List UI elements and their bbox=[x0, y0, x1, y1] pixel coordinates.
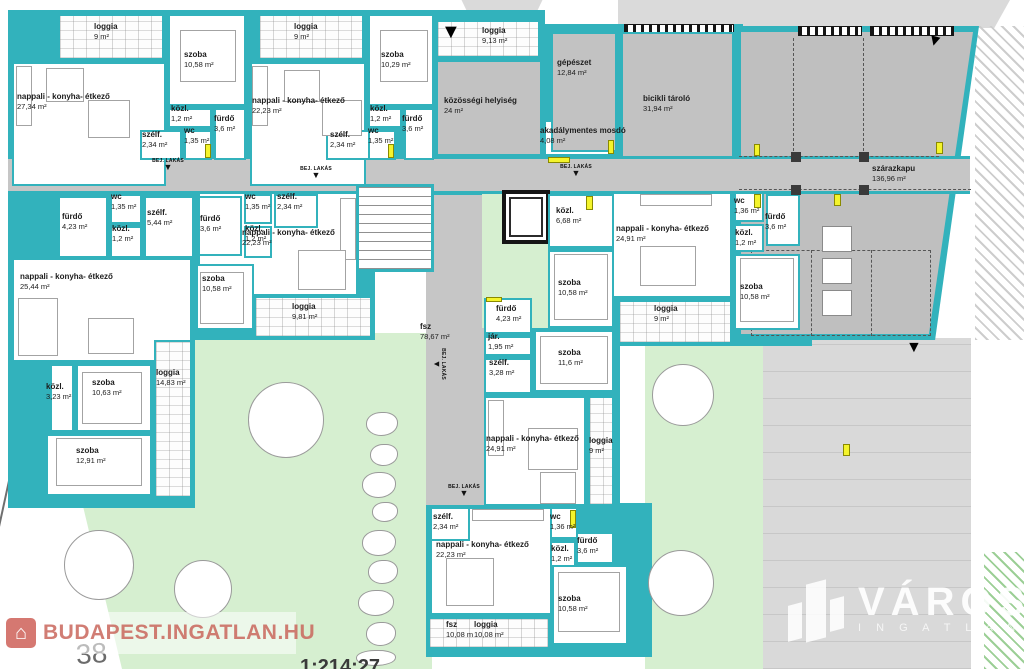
tree-1 bbox=[248, 382, 324, 458]
radiator-marker-11 bbox=[834, 194, 841, 206]
szelf-apt3-room bbox=[144, 196, 194, 258]
furniture-24 bbox=[472, 509, 544, 521]
radiator-marker-3 bbox=[608, 140, 614, 154]
stall-2 bbox=[822, 258, 852, 284]
radiator-marker-8 bbox=[486, 297, 502, 302]
dash-line-3 bbox=[739, 156, 939, 157]
ingatlan-watermark-text: BUDAPEST.INGATLAN.HU bbox=[43, 621, 315, 645]
tree-4 bbox=[652, 364, 714, 426]
varos-logo-icon bbox=[788, 582, 848, 642]
stall-3 bbox=[822, 290, 852, 316]
dash-line-6 bbox=[871, 250, 872, 336]
furniture-25 bbox=[446, 558, 494, 606]
loggia-apt3-room bbox=[154, 340, 192, 498]
varos-watermark-name: VÁROS bbox=[858, 582, 1024, 622]
radiator-marker-4 bbox=[754, 144, 760, 156]
varos-watermark-sub: I N G A T L A N bbox=[858, 622, 1024, 634]
furniture-16 bbox=[554, 254, 608, 320]
furniture-10 bbox=[88, 318, 134, 354]
radiator-marker-12 bbox=[843, 444, 850, 456]
floorplan-canvas: loggia9 m²nappali - konyha- étkező27,34 … bbox=[0, 0, 1024, 669]
radiator-marker-1 bbox=[205, 144, 211, 158]
hatch-right-band bbox=[975, 26, 1024, 340]
tree-3 bbox=[174, 560, 232, 618]
entrance-marker-3: BEJ. LAKÁS▼ bbox=[554, 164, 598, 180]
radiator-marker-10 bbox=[936, 142, 943, 154]
dash-line-2 bbox=[863, 38, 864, 156]
radiator-marker-5 bbox=[548, 157, 570, 163]
entrance-marker-2: BEJ. LAKÁS▼ bbox=[294, 166, 338, 182]
dash-line-4 bbox=[739, 189, 971, 190]
furniture-9 bbox=[18, 298, 58, 356]
tree-2 bbox=[64, 530, 134, 600]
furniture-22 bbox=[640, 246, 696, 286]
radiator-marker-6 bbox=[586, 196, 593, 210]
stall-1 bbox=[822, 226, 852, 252]
entrance-arrow-icon: ▼ bbox=[294, 172, 338, 178]
entrance-marker-1: BEJ. LAKÁS▼ bbox=[146, 158, 190, 174]
tree-5 bbox=[648, 550, 714, 616]
stairwell bbox=[356, 184, 434, 272]
furniture-3 bbox=[88, 100, 130, 138]
pillar-3 bbox=[791, 185, 801, 195]
loggia-apt2-room bbox=[258, 14, 364, 60]
elevator bbox=[502, 190, 550, 244]
furniture-15 bbox=[298, 250, 346, 290]
dash-line-1 bbox=[793, 38, 794, 156]
entrance-arrow-icon: ▼ bbox=[442, 490, 486, 496]
radiator-marker-2 bbox=[388, 144, 394, 158]
varos-watermark: VÁROS I N G A T L A N bbox=[788, 582, 1024, 642]
direction-arrow-1: ▼ bbox=[441, 22, 465, 46]
scale-text-clipped: 1:214:27 bbox=[300, 656, 380, 669]
entrance-marker-4: BEJ. LAKÁS▼ bbox=[442, 484, 486, 500]
loggia-apt1-room bbox=[58, 14, 164, 60]
entrance-marker-5: BEJ. LAKÁS▼ bbox=[430, 342, 446, 386]
vent-strip-2 bbox=[798, 26, 862, 36]
dash-line-5 bbox=[811, 250, 812, 336]
house-icon: ⌂ bbox=[6, 618, 36, 648]
pillar-2 bbox=[859, 152, 869, 162]
ingatlan-watermark: ⌂ BUDAPEST.INGATLAN.HU bbox=[0, 612, 296, 654]
entrance-arrow-icon: ▼ bbox=[554, 170, 598, 176]
pillar-1 bbox=[791, 152, 801, 162]
direction-arrow-3: ▼ bbox=[906, 340, 926, 360]
entrance-arrow-icon: ▼ bbox=[146, 164, 190, 170]
furniture-21 bbox=[640, 194, 712, 206]
floorplan-image: loggia9 m²nappali - konyha- étkező27,34 … bbox=[0, 0, 1024, 669]
furniture-20 bbox=[540, 472, 576, 504]
pillar-4 bbox=[859, 185, 869, 195]
